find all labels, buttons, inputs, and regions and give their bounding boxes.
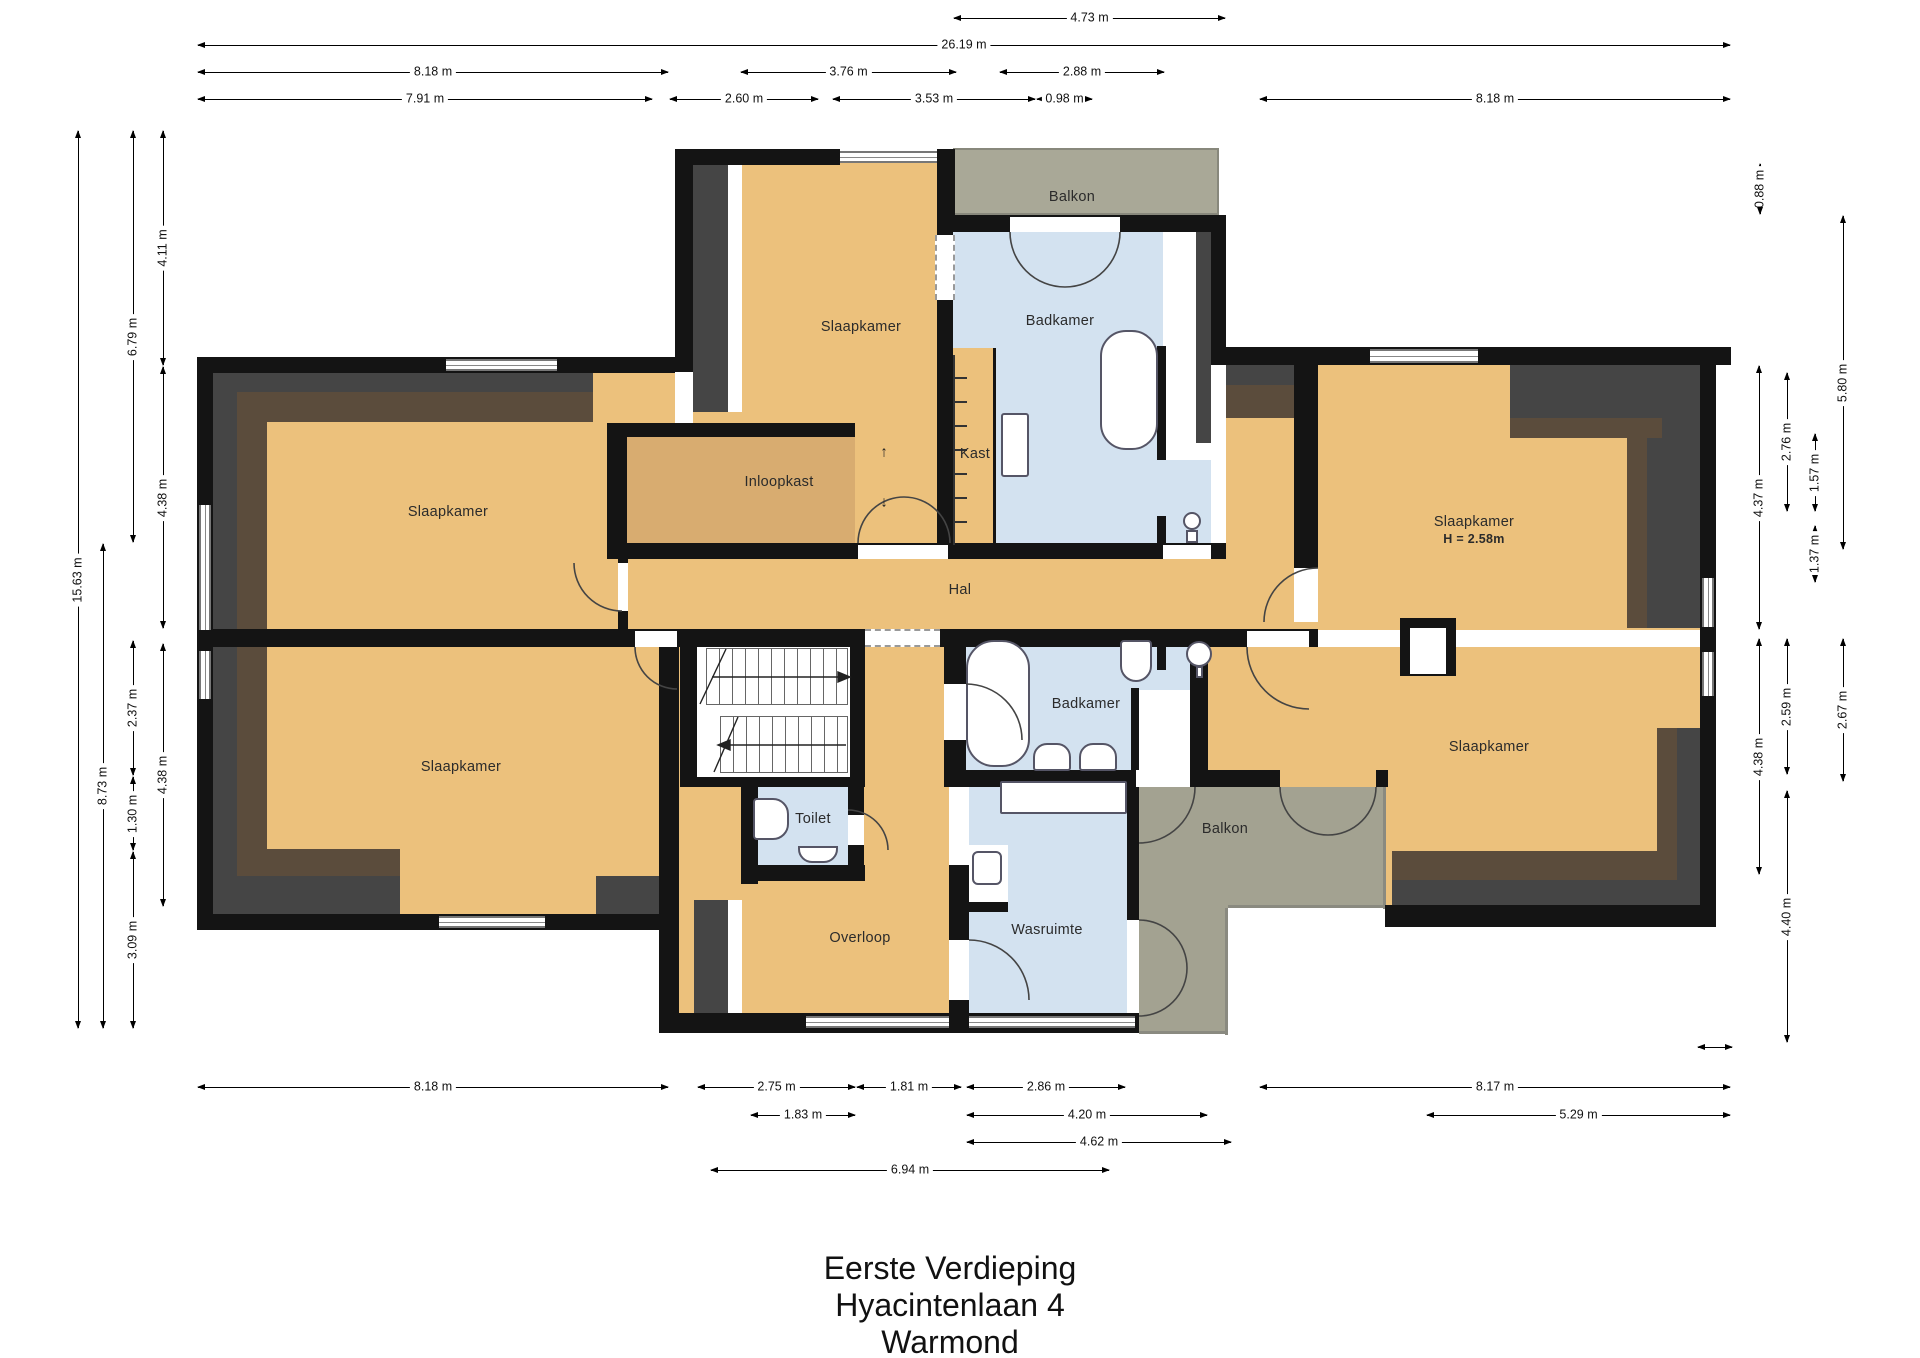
slope-band-brown [1657,728,1677,880]
slope-band [1196,232,1211,443]
room-label-slaapkamer-left-upper: Slaapkamer [408,504,488,520]
dimension-horizontal: 2.88 m [999,65,1165,79]
wall [675,149,693,372]
lowroof-strip [728,163,742,412]
dimension-horizontal: 3.76 m [740,65,957,79]
bathtub-icon [966,640,1030,767]
slope-band-brown [213,392,593,422]
slope-band [596,876,659,914]
washbasin-icon [1033,743,1071,771]
door-opening [1247,631,1309,647]
dimension-vertical: 15.63 m [71,130,85,1029]
room-fill-vestibule [1226,405,1294,559]
door-opening [949,940,969,1000]
wall [627,423,855,437]
window [199,505,211,630]
dimension-horizontal: 26.19 m [197,38,1731,52]
room-label-wasruimte: Wasruimte [1011,922,1082,938]
wall-niche [1410,628,1446,674]
dimension-vertical: 5.80 m [1836,215,1850,550]
wall [659,629,679,1033]
wall [1157,633,1166,670]
wall [848,845,864,881]
window [199,651,211,699]
dimension-vertical: 8.73 m [96,543,110,1029]
dimension-horizontal [1697,1040,1733,1054]
dimension-horizontal: 4.73 m [953,11,1226,25]
room-fill-passage [855,437,937,543]
dashed-opening-badkamer [935,235,955,300]
dimension-vertical: 1.30 m [126,776,140,851]
dimension-vertical: 6.79 m [126,130,140,543]
stair-flight-lower [720,716,848,773]
slope-band-brown [1627,418,1647,628]
window [806,1016,949,1028]
wall [741,865,865,881]
window [840,151,937,163]
door-opening [944,684,966,740]
wall [1157,346,1166,460]
wall [197,357,675,373]
dashed-opening-hal [865,629,940,647]
door-opening [1294,568,1318,622]
dimension-vertical: 2.67 m [1836,638,1850,782]
dimension-horizontal: 4.62 m [966,1135,1232,1149]
balkon-balustrade [1225,908,1228,1035]
room-fill-inloopkast [627,437,855,543]
window [969,1016,1135,1028]
corner-sink-icon [798,846,838,863]
wall [1127,787,1139,920]
vanity-icon [1001,413,1029,477]
door-opening [618,563,628,611]
door-opening [848,815,864,845]
slope-band-brown [237,849,400,876]
door-opening [1010,217,1120,232]
dimension-horizontal: 8.18 m [197,65,669,79]
dimension-horizontal: 6.94 m [710,1163,1110,1177]
room-label-badkamer-top: Badkamer [1026,313,1095,329]
wall [937,149,955,222]
slope-band-brown [1392,851,1677,880]
window [1702,578,1714,627]
door-opening [1163,545,1211,559]
slope-band [693,163,728,412]
wall [607,423,627,559]
washbasin-icon [1079,743,1117,771]
wall [1700,347,1716,927]
toilet-tank-icon [1186,530,1198,543]
window [1702,652,1714,696]
dimension-horizontal: 1.83 m [750,1108,856,1122]
balkon-balustrade [1383,787,1386,909]
dimension-horizontal: 2.75 m [697,1080,856,1094]
arrow-up-icon: ↑ [880,444,888,461]
balkon-top-edge [1219,148,1226,215]
wall [1385,905,1716,927]
dimension-horizontal: 5.29 m [1426,1108,1731,1122]
room-label-slaapkamer-top-middle: Slaapkamer [821,319,901,335]
wall [1376,770,1388,787]
dimension-vertical: 0.88 m [1753,163,1767,215]
wall [675,149,840,165]
window [446,359,557,371]
slope-band [1645,365,1700,628]
dimension-horizontal: 1.81 m [856,1080,962,1094]
dimension-vertical: 1.37 m [1808,525,1822,583]
room-label-overloop: Overloop [829,930,890,946]
lowroof-strip [728,900,742,1013]
dimension-vertical: 2.76 m [1780,372,1794,512]
dimension-vertical: 4.11 m [156,130,170,366]
title-floor: Eerste Verdieping [824,1250,1077,1287]
dimension-horizontal: 8.18 m [1259,92,1731,106]
wall [848,787,864,815]
wall [966,902,1008,912]
room-label-badkamer-bottom: Badkamer [1052,696,1121,712]
dimension-horizontal: 4.20 m [966,1108,1208,1122]
floorplan-drawing: ↑ ↓ SlaapkamerBadkamerBalkonInloopkastKa… [0,0,1920,1358]
room-label-kast: Kast [960,446,990,462]
dimension-vertical: 4.38 m [156,366,170,629]
toilet-icon [1183,512,1201,530]
wall [680,643,697,777]
dimension-horizontal: 7.91 m [197,92,653,106]
room-label-hal: Hal [949,582,972,598]
dimension-vertical: 4.38 m [156,643,170,907]
room-label-slaapkamer-right-upper: SlaapkamerH = 2.58m [1434,514,1514,546]
wall [197,914,659,930]
balkon-balustrade [1139,1031,1228,1034]
dimension-horizontal: 8.17 m [1259,1080,1731,1094]
window [439,916,545,928]
door-opening [635,631,677,647]
wall [1208,770,1280,787]
dimension-vertical: 4.40 m [1780,790,1794,1043]
slope-band [213,392,237,907]
dimension-vertical: 4.38 m [1752,638,1766,875]
toilet-icon [1120,640,1152,682]
laundry-counter-icon [1000,781,1127,814]
toilet-icon [753,798,789,840]
room-label-toilet: Toilet [795,811,831,827]
wall [850,643,865,787]
slope-band [213,876,400,914]
pedestal-sink-stem-icon [1196,666,1203,678]
dimension-vertical: 2.37 m [126,640,140,776]
bathtub-icon [1100,330,1158,450]
dimension-vertical: 1.57 m [1808,433,1822,512]
dimension-vertical: 4.37 m [1752,365,1766,630]
slope-band [694,900,728,1013]
room-label-slaapkamer-right-lower: Slaapkamer [1449,739,1529,755]
stair-flight-upper [706,648,848,705]
title-street: Hyacintenlaan 4 [824,1287,1077,1324]
balkon-balustrade [1228,905,1385,908]
dimension-vertical: 2.59 m [1780,638,1794,775]
room-label-balkon-bottom: Balkon [1202,821,1248,837]
floorplan-page: ↑ ↓ SlaapkamerBadkamerBalkonInloopkastKa… [0,0,1920,1358]
wall [1131,688,1139,770]
room-label-balkon-top: Balkon [1049,189,1095,205]
slope-band [213,372,593,392]
dimension-horizontal: 8.18 m [197,1080,669,1094]
dimension-horizontal: 3.53 m [832,92,1036,106]
dimension-horizontal: 2.86 m [966,1080,1126,1094]
dimension-vertical: 3.09 m [126,851,140,1029]
plan-title: Eerste Verdieping Hyacintenlaan 4 Warmon… [824,1250,1077,1358]
dimension-horizontal: 2.60 m [669,92,819,106]
wall [680,777,865,787]
slope-band [1392,880,1702,905]
wall [1211,215,1226,365]
badkamer-bottom-recess [1139,690,1192,770]
utility-sink-icon [972,851,1002,885]
slope-band [1677,728,1700,905]
pedestal-sink-icon [1186,641,1212,667]
arrow-down-icon: ↓ [880,494,888,511]
room-label-inloopkast: Inloopkast [744,474,813,490]
title-city: Warmond [824,1324,1077,1358]
wall [1157,516,1166,545]
window [1370,349,1478,363]
wall [1294,365,1318,568]
door-opening [858,545,948,559]
room-label-slaapkamer-left-lower: Slaapkamer [421,759,501,775]
dimension-horizontal: 0.98 m [1036,92,1093,106]
